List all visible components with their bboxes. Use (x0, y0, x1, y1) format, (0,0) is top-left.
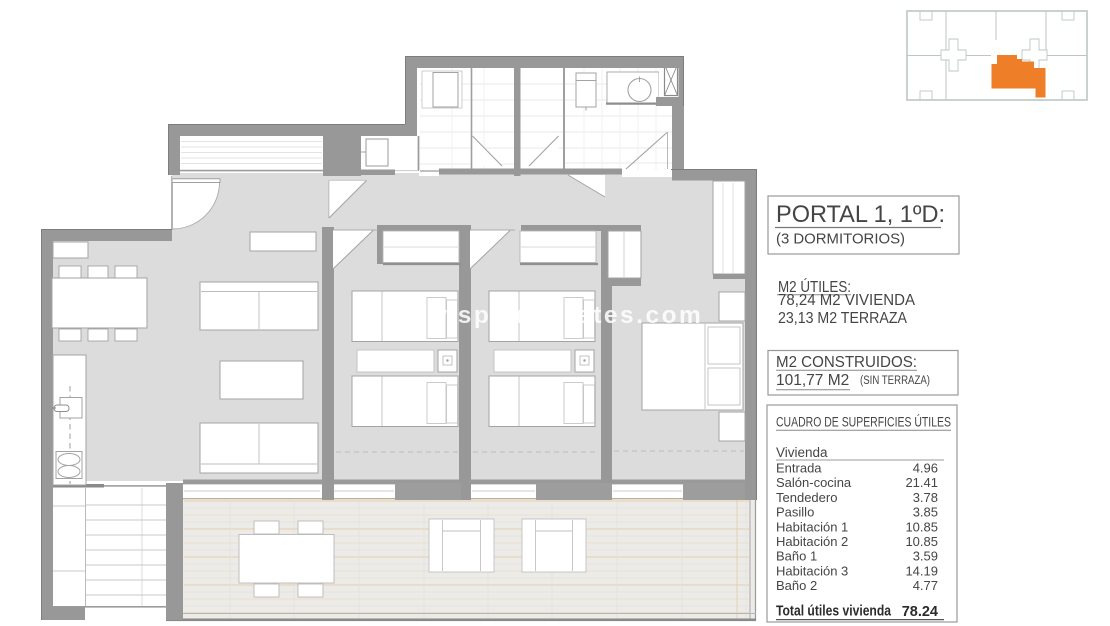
svg-text:23,13 M2 TERRAZA: 23,13 M2 TERRAZA (778, 310, 908, 327)
svg-text:(3 DORMITORIOS): (3 DORMITORIOS) (776, 231, 905, 248)
svg-text:10.85: 10.85 (905, 534, 938, 549)
svg-text:PORTAL 1, 1ºD:: PORTAL 1, 1ºD: (776, 201, 945, 228)
svg-text:3.78: 3.78 (913, 490, 938, 505)
svg-text:www.spainestates.com: www.spainestates.com (384, 302, 704, 329)
svg-text:Total útiles vivienda: Total útiles vivienda (776, 604, 892, 620)
svg-text:Baño 1: Baño 1 (776, 549, 817, 564)
svg-text:Tendedero: Tendedero (776, 490, 837, 505)
svg-text:10.85: 10.85 (905, 519, 938, 534)
svg-text:(SIN TERRAZA): (SIN TERRAZA) (860, 375, 930, 387)
svg-text:Habitación 3: Habitación 3 (776, 563, 848, 578)
svg-text:Habitación 2: Habitación 2 (776, 534, 848, 549)
svg-text:Entrada: Entrada (776, 461, 822, 476)
svg-text:4.77: 4.77 (913, 578, 938, 593)
svg-text:3.59: 3.59 (913, 549, 938, 564)
svg-text:21.41: 21.41 (905, 475, 938, 490)
svg-text:Pasillo: Pasillo (776, 505, 814, 520)
svg-text:4.96: 4.96 (913, 461, 938, 476)
svg-text:101,77 M2: 101,77 M2 (776, 372, 849, 389)
svg-text:14.19: 14.19 (905, 563, 938, 578)
svg-text:Salón-cocina: Salón-cocina (776, 475, 852, 490)
svg-text:78.24: 78.24 (902, 604, 938, 620)
svg-text:M2 CONSTRUIDOS:: M2 CONSTRUIDOS: (776, 354, 917, 371)
svg-text:Habitación 1: Habitación 1 (776, 519, 848, 534)
svg-text:Vivienda: Vivienda (776, 445, 828, 460)
svg-text:78,24 M2 VIVIENDA: 78,24 M2 VIVIENDA (778, 292, 916, 309)
svg-text:3.85: 3.85 (913, 505, 938, 520)
svg-text:CUADRO DE SUPERFICIES ÚTILES: CUADRO DE SUPERFICIES ÚTILES (776, 415, 951, 430)
svg-text:Baño 2: Baño 2 (776, 578, 817, 593)
